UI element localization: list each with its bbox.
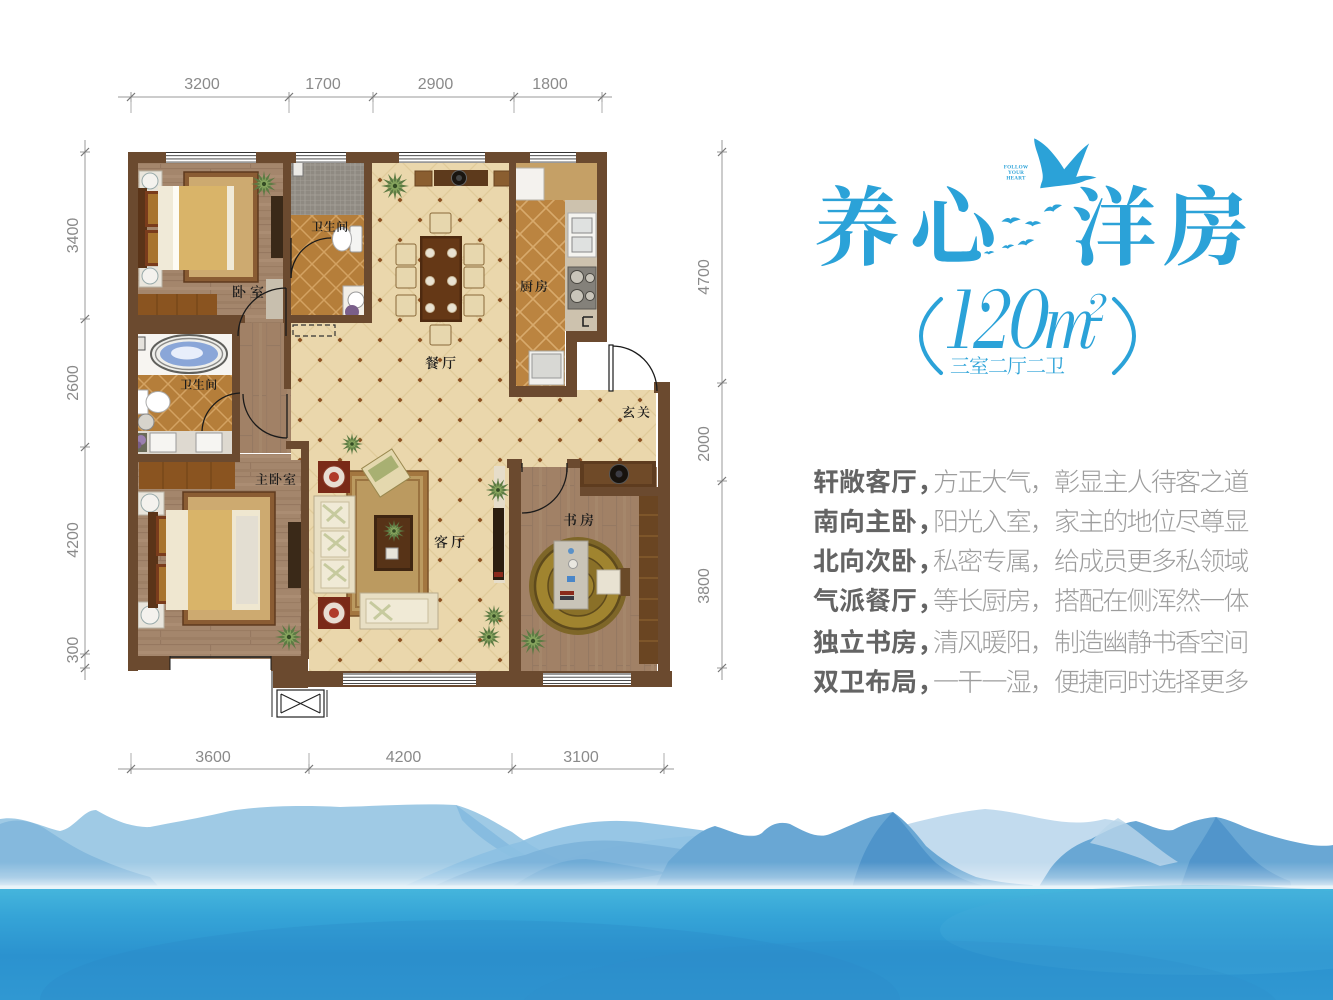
svg-text:4200: 4200 <box>386 749 422 766</box>
svg-text:3200: 3200 <box>184 76 220 93</box>
svg-text:4200: 4200 <box>65 522 82 558</box>
svg-text:1700: 1700 <box>305 76 341 93</box>
svg-text:1800: 1800 <box>532 76 568 93</box>
svg-text:2900: 2900 <box>418 76 454 93</box>
svg-text:HEART: HEART <box>1006 176 1026 182</box>
svg-text:3600: 3600 <box>195 749 231 766</box>
svg-text:3100: 3100 <box>563 749 599 766</box>
svg-text:2600: 2600 <box>65 365 82 401</box>
svg-text:3400: 3400 <box>65 218 82 254</box>
svg-text:300: 300 <box>65 637 82 664</box>
svg-text:2000: 2000 <box>696 426 713 462</box>
svg-text:4700: 4700 <box>696 259 713 295</box>
svg-text:3800: 3800 <box>696 568 713 604</box>
